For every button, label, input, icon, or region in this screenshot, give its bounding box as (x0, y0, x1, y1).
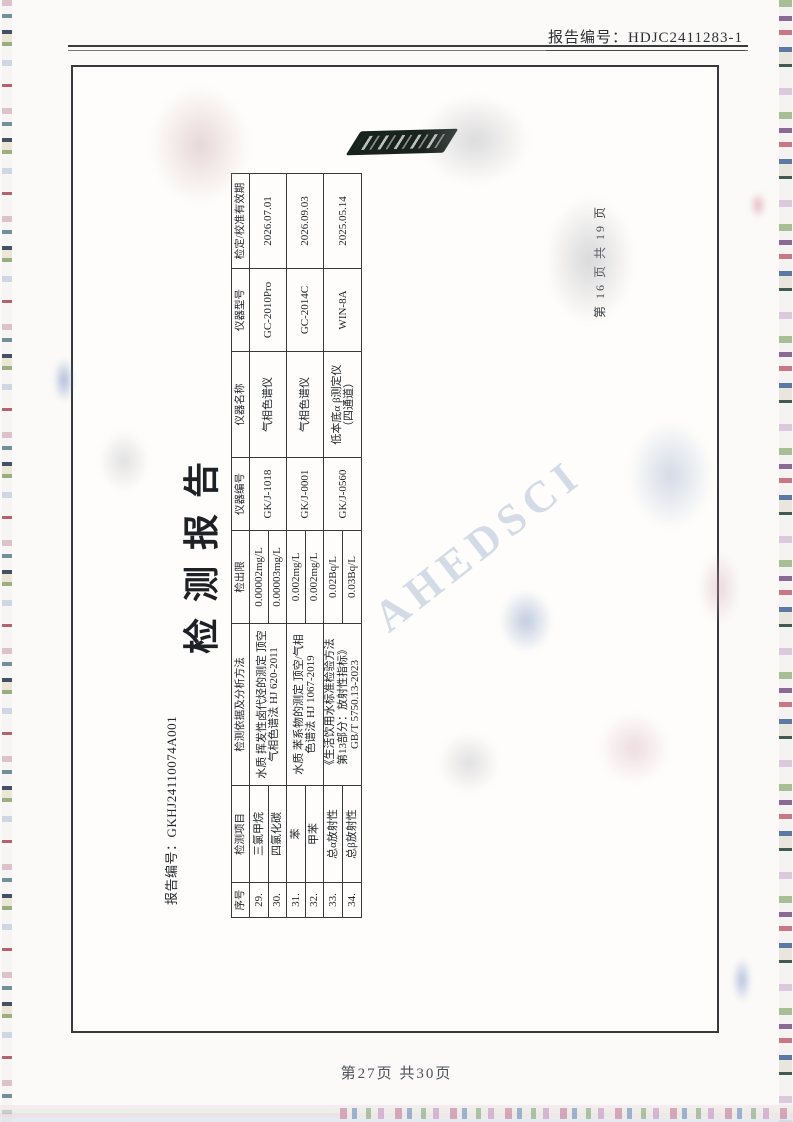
scanned-report-page: 报告编号：HDJC2411283-1 报告编号：GKHJ24110074A001… (0, 0, 793, 1122)
cell-item: 苯 (287, 786, 306, 883)
col-header-model: 仪器型号 (232, 269, 250, 352)
report-title: 检测报告 (173, 198, 225, 918)
cell-instrument-name: 气相色谱仪 (287, 352, 324, 458)
cell-instrument-name: 气相色谱仪 (250, 352, 287, 458)
cell-instrument-no: GK/J-0560 (324, 458, 362, 531)
scan-smudge (545, 195, 635, 325)
cell-instrument-no: GK/J-1018 (250, 458, 287, 531)
cell-seq: 30. (268, 883, 287, 918)
scan-smudge (750, 192, 766, 218)
cell-seq: 34. (343, 883, 362, 918)
cell-item: 总β放射性 (343, 786, 362, 883)
cell-method: 水质 苯系物的测定 顶空/气相 色谱法 HJ 1067-2019 (287, 624, 324, 786)
cell-item: 四氯化碳 (268, 786, 287, 883)
test-items-table: 序号 检测项目 检测依据及分析方法 检出限 仪器编号 仪器名称 仪器型号 检定/… (231, 173, 362, 918)
cell-limit: 0.002mg/L (305, 531, 324, 624)
scan-noise-bottom-detail (340, 1108, 790, 1119)
scan-noise-right-edge (779, 0, 792, 1122)
table-header-row: 序号 检测项目 检测依据及分析方法 检出限 仪器编号 仪器名称 仪器型号 检定/… (232, 174, 250, 918)
table-row: 31. 苯 水质 苯系物的测定 顶空/气相 色谱法 HJ 1067-2019 0… (287, 174, 306, 918)
cell-validity: 2025.05.14 (324, 174, 362, 269)
scan-smudge (498, 588, 554, 654)
scan-smudge (150, 85, 250, 205)
cell-seq: 29. (250, 883, 269, 918)
cell-validity: 2026.09.03 (287, 174, 324, 269)
cell-validity: 2026.07.01 (250, 174, 287, 269)
cell-item: 总α放射性 (324, 786, 343, 883)
scan-smudge (438, 732, 500, 794)
scan-smudge (733, 958, 751, 1002)
col-header-seq: 序号 (232, 883, 250, 918)
table-row: 29. 三氯甲烷 水质 挥发性卤代烃的测定 顶空 气相色谱法 HJ 620-20… (250, 174, 269, 918)
cell-model: WIN-8A (324, 269, 362, 352)
scan-smudge (54, 358, 74, 402)
scan-smudge (420, 95, 530, 185)
col-header-item: 检测项目 (232, 786, 250, 883)
cell-instrument-no: GK/J-0001 (287, 458, 324, 531)
col-header-method: 检测依据及分析方法 (232, 624, 250, 786)
cell-seq: 32. (305, 883, 324, 918)
cell-limit: 0.02Bq/L (324, 531, 343, 624)
cell-item: 三氯甲烷 (250, 786, 269, 883)
col-header-limit: 检出限 (232, 531, 250, 624)
cell-model: GC-2014C (287, 269, 324, 352)
cell-instrument-name: 低本底α β测定仪 （四通道） (324, 352, 362, 458)
cell-model: GC-2010Pro (250, 269, 287, 352)
cell-limit: 0.002mg/L (287, 531, 306, 624)
header-report-number: 报告编号：HDJC2411283-1 (546, 26, 745, 51)
report-frame: 报告编号：GKHJ24110074A001 检测报告 序号 检测项目 检测依据及… (71, 65, 719, 1033)
col-header-instr-name: 仪器名称 (232, 352, 250, 458)
col-header-instr-no: 仪器编号 (232, 458, 250, 531)
scan-smudge (98, 430, 150, 492)
cell-item: 甲苯 (305, 786, 324, 883)
cell-limit: 0.00003mg/L (268, 531, 287, 624)
cell-seq: 33. (324, 883, 343, 918)
cell-limit: 0.00002mg/L (250, 531, 269, 624)
cell-seq: 31. (287, 883, 306, 918)
table-row: 33. 总α放射性 《生活饮用水标准检验方法 第13部分：放射性指标》 GB/T… (324, 174, 343, 918)
scan-noise-left-edge (2, 0, 12, 1122)
scan-smudge (598, 712, 670, 784)
page-footer: 第27页 共30页 (0, 1062, 793, 1083)
scan-smudge (628, 420, 713, 530)
scan-smudge (698, 552, 740, 624)
cell-method: 水质 挥发性卤代烃的测定 顶空 气相色谱法 HJ 620-2011 (250, 624, 287, 786)
